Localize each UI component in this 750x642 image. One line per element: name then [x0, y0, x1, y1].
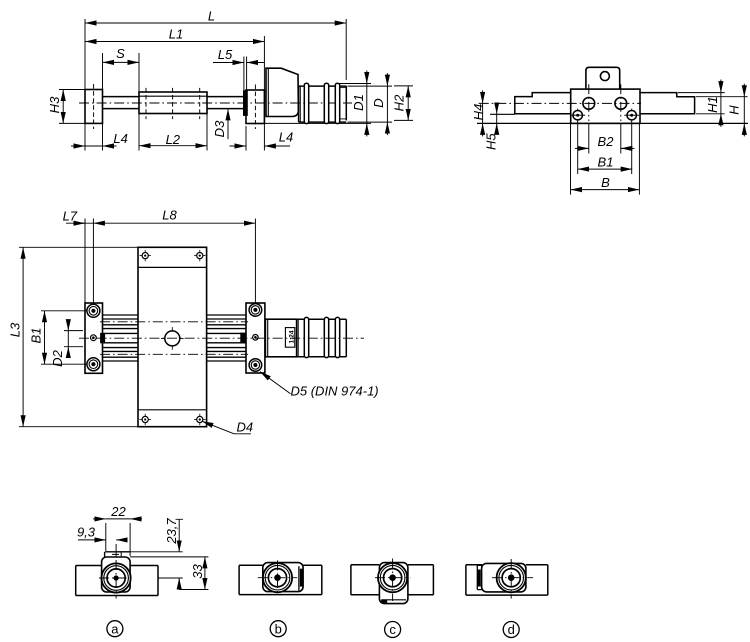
svg-text:S: S [116, 46, 125, 61]
svg-text:H: H [727, 105, 742, 115]
svg-text:L1: L1 [169, 27, 183, 42]
svg-text:D3: D3 [212, 120, 227, 137]
svg-text:L: L [208, 9, 215, 24]
svg-text:B: B [601, 175, 610, 190]
svg-text:B1: B1 [598, 155, 614, 170]
svg-text:H2: H2 [392, 94, 407, 111]
svg-text:L4: L4 [279, 130, 293, 145]
svg-text:L4: L4 [113, 131, 127, 146]
svg-text:23,7: 23,7 [164, 518, 179, 545]
svg-text:22: 22 [110, 504, 126, 519]
svg-text:B1: B1 [29, 328, 44, 344]
svg-text:a: a [111, 621, 119, 636]
svg-text:H5: H5 [484, 133, 499, 150]
svg-text:H1: H1 [705, 96, 720, 113]
svg-text:H3: H3 [47, 96, 62, 113]
svg-text:D2: D2 [50, 349, 65, 366]
svg-text:d: d [508, 622, 515, 637]
svg-text:H4: H4 [471, 104, 486, 121]
svg-text:L8: L8 [162, 208, 177, 223]
svg-text:D1: D1 [351, 94, 366, 111]
svg-text:c: c [389, 622, 396, 637]
svg-text:L2: L2 [166, 132, 181, 147]
svg-text:D5 (DIN 974-1): D5 (DIN 974-1) [291, 384, 379, 399]
svg-text:L7: L7 [63, 209, 78, 224]
svg-text:D4: D4 [237, 420, 254, 435]
svg-text:1:24: 1:24 [289, 330, 296, 343]
svg-text:L3: L3 [8, 322, 23, 337]
svg-text:B2: B2 [598, 134, 615, 149]
svg-text:D: D [371, 98, 386, 107]
svg-text:L5: L5 [218, 47, 233, 62]
svg-text:9,3: 9,3 [77, 525, 96, 540]
svg-text:b: b [275, 621, 282, 636]
svg-text:33: 33 [190, 564, 205, 579]
